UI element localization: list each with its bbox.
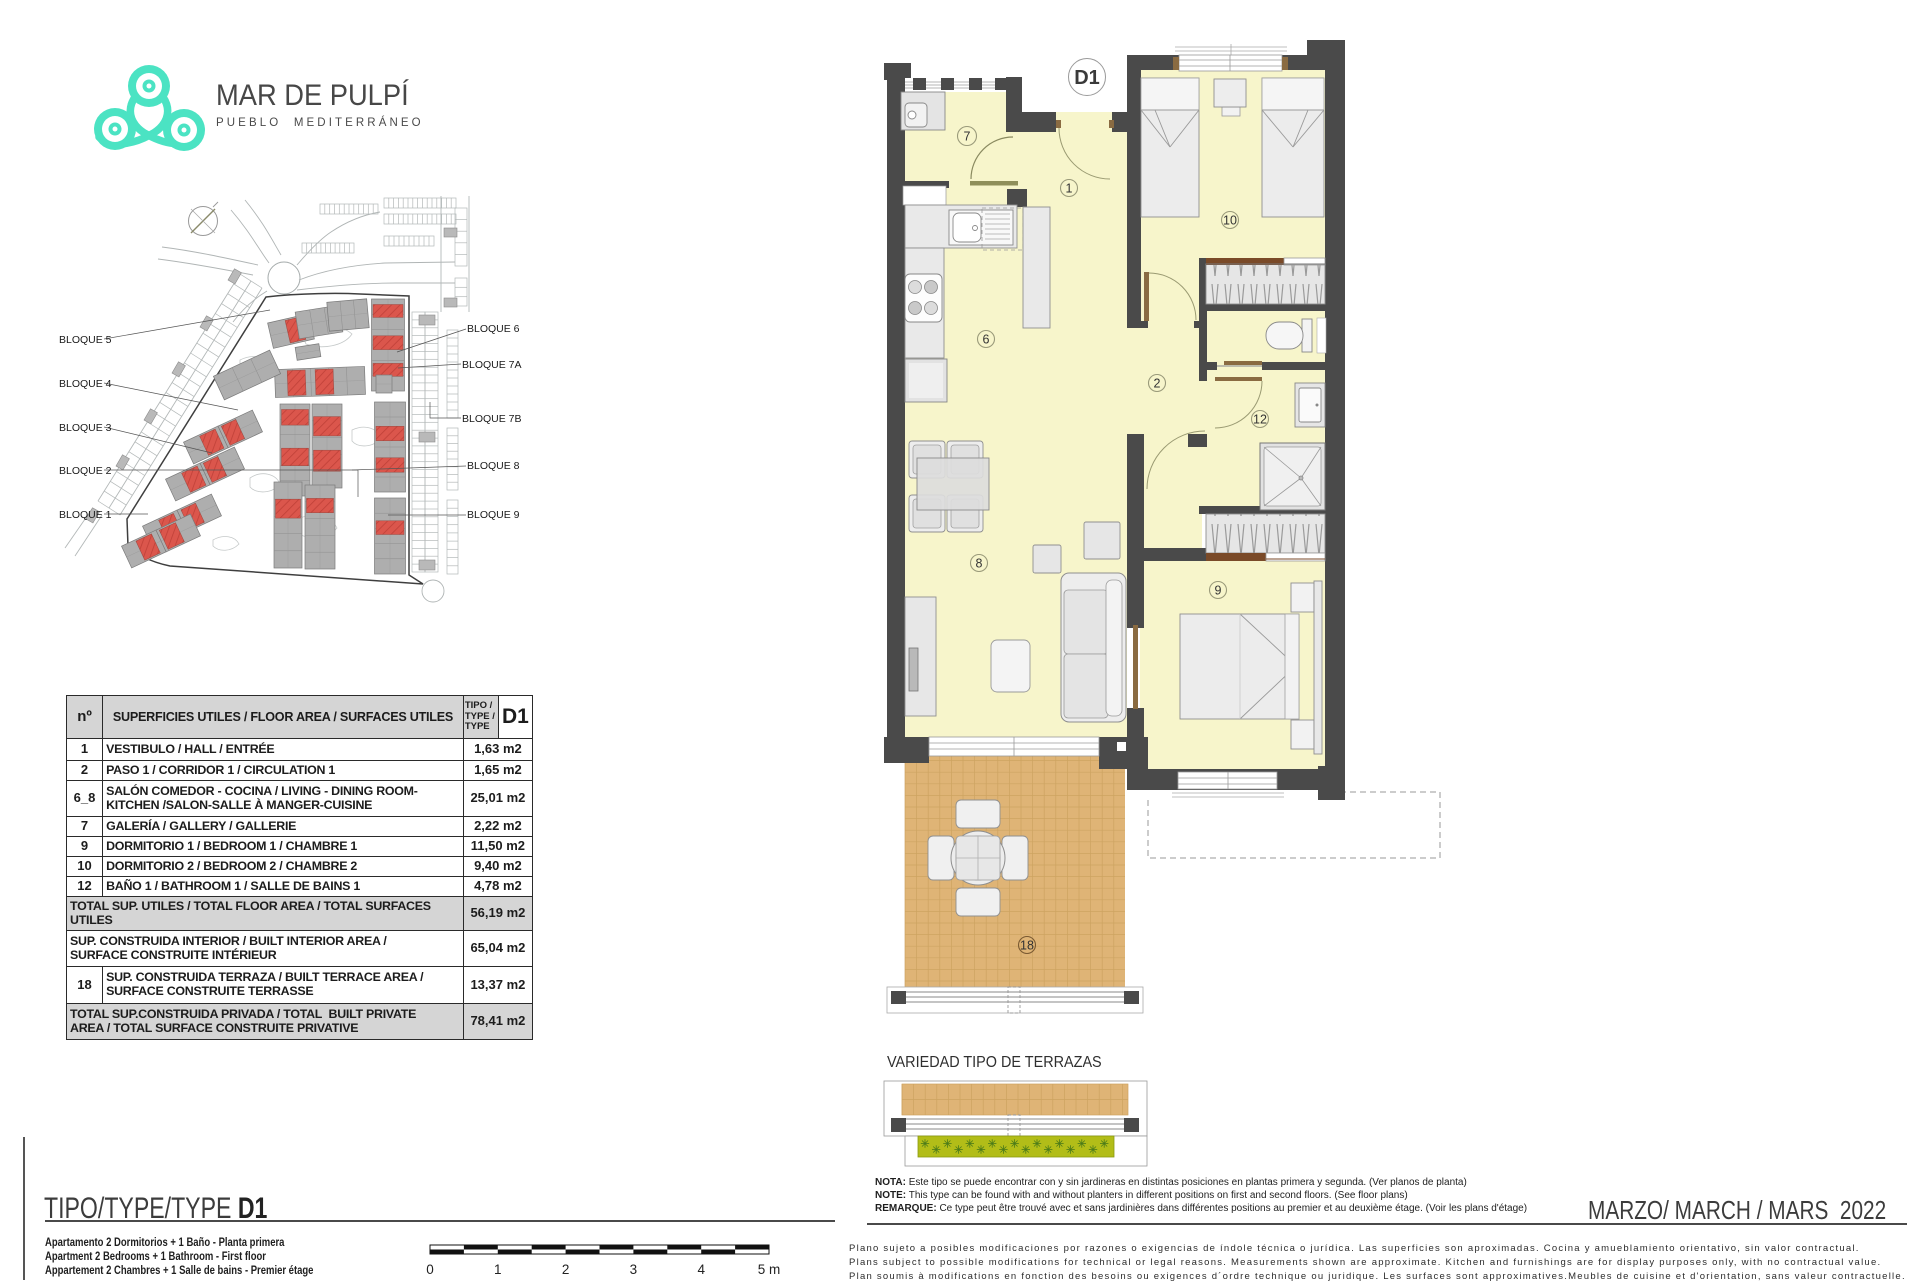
svg-text:18: 18 — [1020, 938, 1034, 952]
svg-text:5 m: 5 m — [758, 1262, 781, 1277]
svg-text:3: 3 — [630, 1262, 638, 1277]
svg-text:10: 10 — [1223, 213, 1237, 227]
svg-text:BLOQUE 7A: BLOQUE 7A — [462, 359, 522, 371]
svg-text:1: 1 — [494, 1262, 502, 1277]
svg-text:BLOQUE 7B: BLOQUE 7B — [462, 413, 522, 425]
svg-text:7: 7 — [964, 129, 971, 143]
svg-text:6: 6 — [983, 332, 990, 346]
svg-text:BLOQUE 1: BLOQUE 1 — [59, 509, 112, 521]
svg-text:2: 2 — [1154, 376, 1161, 390]
svg-text:BLOQUE 4: BLOQUE 4 — [59, 378, 112, 390]
svg-text:BLOQUE 2: BLOQUE 2 — [59, 465, 112, 477]
svg-text:1: 1 — [1066, 181, 1073, 195]
svg-text:4: 4 — [697, 1262, 705, 1277]
svg-text:BLOQUE 5: BLOQUE 5 — [59, 334, 112, 346]
svg-text:8: 8 — [976, 556, 983, 570]
svg-text:12: 12 — [1253, 412, 1267, 426]
svg-text:2: 2 — [562, 1262, 570, 1277]
svg-text:BLOQUE 6: BLOQUE 6 — [467, 323, 520, 335]
svg-text:0: 0 — [426, 1262, 434, 1277]
svg-text:BLOQUE 3: BLOQUE 3 — [59, 422, 112, 434]
svg-text:D1: D1 — [1074, 67, 1100, 89]
svg-text:9: 9 — [1215, 583, 1222, 597]
svg-text:BLOQUE 8: BLOQUE 8 — [467, 460, 520, 472]
svg-text:BLOQUE 9: BLOQUE 9 — [467, 509, 520, 521]
